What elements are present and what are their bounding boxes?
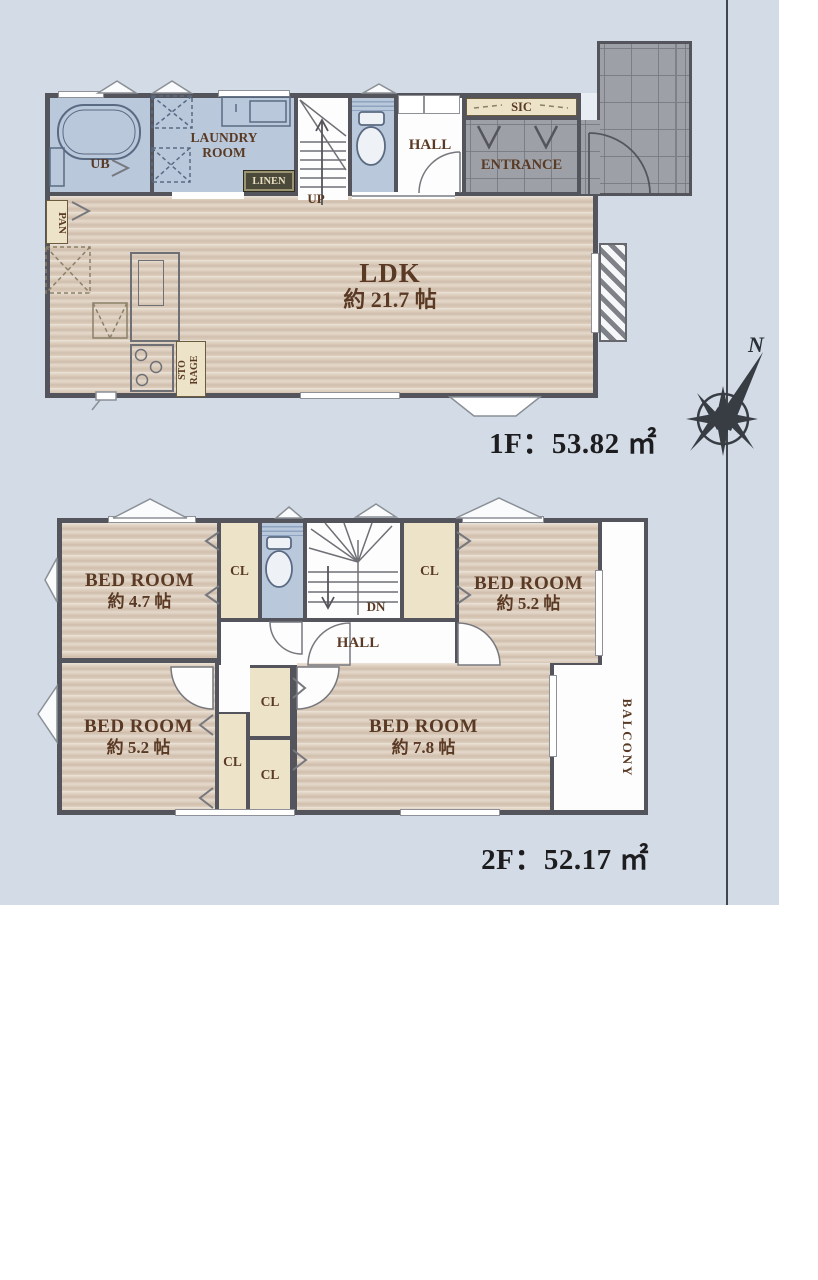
exterior-hatch-block: [599, 243, 627, 342]
window-bedroom-d-bottom: [400, 809, 500, 816]
window-ldk-bottom: [300, 392, 400, 399]
floor2-area-label: 2F：52.17 ㎡: [440, 836, 690, 878]
bedroom-d-size: 約 7.8 帖: [392, 738, 456, 757]
storage-label: STO RAGE: [177, 342, 207, 398]
room-hall-2f: HALL: [221, 622, 455, 665]
linen-label: LINEN: [252, 176, 285, 187]
bedroom-b-name: BED ROOM: [474, 573, 583, 594]
window-laundry-top: [218, 90, 290, 97]
storage-box: STO RAGE: [176, 341, 206, 397]
closet-3: CL: [250, 668, 290, 736]
dn-label: DN: [355, 600, 397, 615]
ub-label: UB: [90, 157, 109, 173]
closet-1: CL: [221, 523, 258, 618]
window-hall-top: [398, 95, 460, 114]
pantry-box: PAN: [46, 200, 68, 244]
room-bedroom-7-8: BED ROOM 約 7.8 帖: [297, 663, 550, 810]
bedroom-d-name: BED ROOM: [369, 716, 478, 737]
closet-2: CL: [404, 523, 455, 618]
window-bedroom-a-top: [108, 516, 196, 523]
window-bedroom-d-balcony: [549, 675, 557, 757]
room-bedroom-4-7: BED ROOM 約 4.7 帖: [62, 523, 217, 658]
floor1-plan: UB LAUNDRY ROOM HALL SIC ENTRANCE: [45, 93, 598, 398]
toilet-shelf-2f: [262, 523, 303, 536]
bedroom-a-name: BED ROOM: [85, 570, 194, 591]
window-ub-top: [58, 91, 104, 98]
window-bedroom-c-bottom: [175, 809, 295, 816]
room-unit-bath: UB: [50, 98, 150, 192]
stove: [130, 344, 174, 392]
closet-2-label: CL: [420, 563, 439, 578]
laundry-label: LAUNDRY ROOM: [174, 130, 274, 160]
toilet-shelf-1f: [352, 98, 394, 111]
closet-3-label: CL: [261, 694, 280, 709]
closet-5: CL: [250, 740, 290, 810]
pan-label: PAN: [46, 201, 68, 245]
sliding-door-track: [352, 195, 455, 197]
window-divider: [423, 96, 425, 113]
hall-2f-label: HALL: [337, 635, 380, 652]
entrance-label: ENTRANCE: [481, 157, 562, 173]
balcony-label: BALCONY: [612, 678, 634, 798]
closet-4-label: CL: [223, 754, 242, 769]
sic-label: SIC: [511, 100, 532, 114]
sic-box: SIC: [466, 98, 577, 116]
kitchen-sink: [138, 260, 164, 306]
closet-4: CL: [219, 714, 246, 810]
page-divider-line: [726, 0, 728, 905]
floor1-area-label: 1F：53.82 ㎡: [448, 420, 698, 462]
entrance-approach-connector: [581, 120, 600, 194]
opening-laundry-ldk: [172, 192, 244, 199]
room-bedroom-5-2-top: BED ROOM 約 5.2 帖: [459, 523, 598, 663]
window-ldk-right: [591, 253, 599, 333]
linen-box: LINEN: [243, 170, 295, 192]
bedroom-c-size: 約 5.2 帖: [107, 738, 171, 757]
up-label: UP: [296, 192, 336, 207]
bedroom-c-name: BED ROOM: [84, 716, 193, 737]
closet-5-label: CL: [261, 767, 280, 782]
window-bedroom-b-right: [595, 570, 603, 656]
window-bedroom-b-top: [462, 516, 544, 523]
closet-1-label: CL: [230, 563, 249, 578]
hall-1f-label: HALL: [409, 137, 452, 154]
ldk-name: LDK: [305, 258, 475, 288]
compass-north-label: N: [748, 332, 764, 358]
room-toilet-2f: [262, 523, 303, 618]
room-bedroom-5-2-bottom: BED ROOM 約 5.2 帖: [62, 663, 215, 810]
floor2-plan: BED ROOM 約 4.7 帖 CL CL BED ROOM 約 5.2 帖 …: [57, 518, 648, 815]
bedroom-b-size: 約 5.2 帖: [497, 594, 561, 613]
room-toilet-1f: [352, 98, 394, 192]
bedroom-a-size: 約 4.7 帖: [108, 592, 172, 611]
ldk-size: 約 21.7 帖: [305, 288, 475, 313]
room-entrance: ENTRANCE: [466, 120, 577, 192]
hall-extension: [219, 665, 250, 712]
stairs-1f: [298, 98, 348, 192]
ldk-label: LDK 約 21.7 帖: [305, 258, 475, 313]
entrance-approach-tile: [597, 41, 692, 196]
